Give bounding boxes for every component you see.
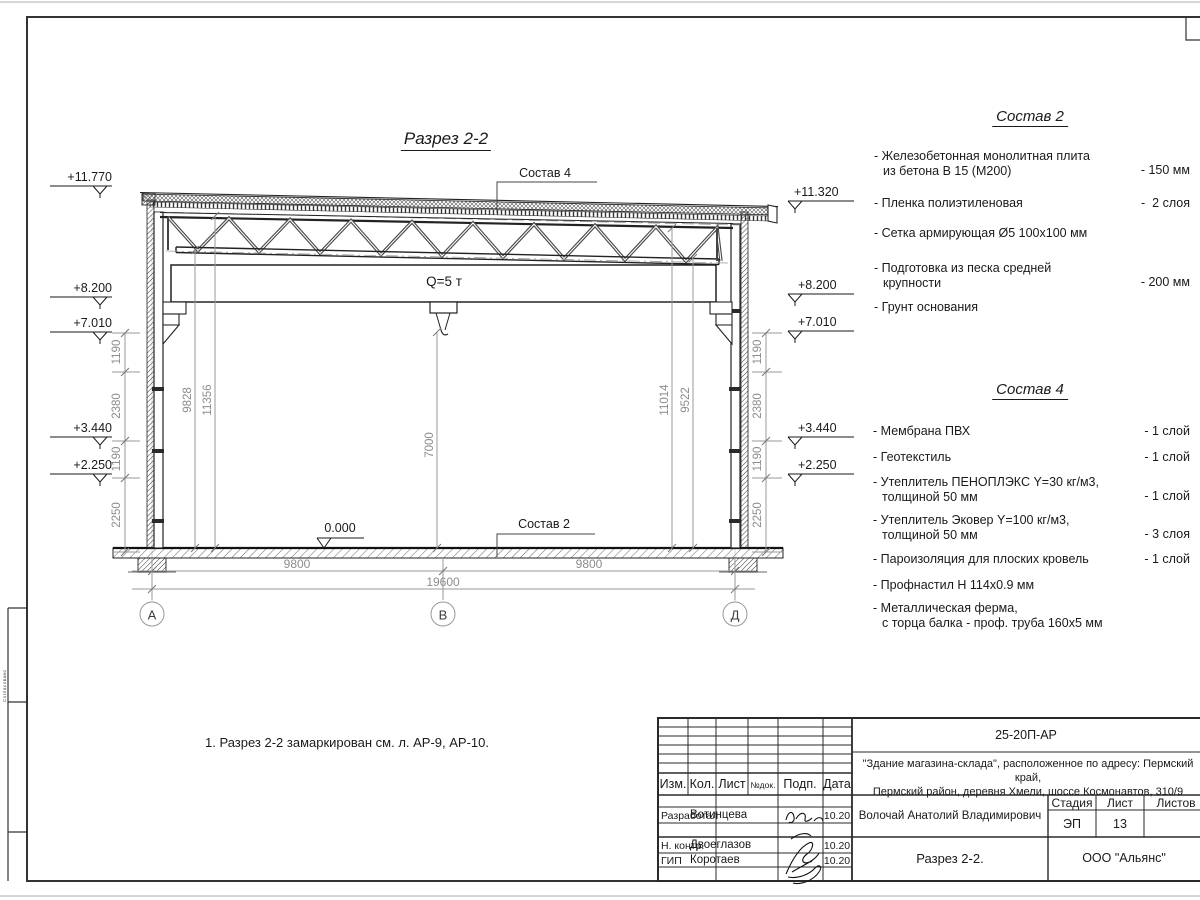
floor-slab (113, 548, 783, 572)
dim-9828: 9828 (182, 387, 194, 413)
comp4-item-4: - Пароизоляция для плоских кровель (873, 552, 1089, 567)
dim-right-1190a: 1190 (752, 340, 764, 365)
sheet-frame (8, 17, 1200, 881)
comp4-value-1: - 1 слой (1092, 450, 1190, 464)
titleblock-date-0: 10.20 (824, 810, 850, 822)
titleblock-sheet-label: Лист (1107, 796, 1133, 810)
level-left-2: +7.010 (50, 316, 112, 330)
dim-9522: 9522 (680, 387, 692, 413)
level-left-0: +11.770 (50, 170, 112, 184)
comp4-item-3: - Утеплитель Эковер Y=100 кг/м3, толщино… (873, 513, 1069, 542)
titleblock-col-kol: Кол. (690, 777, 715, 791)
titleblock-date-2: 10.20 (824, 855, 850, 867)
axis-d: Д (731, 608, 740, 623)
comp2-item-2: - Сетка армирующая Ø5 100х100 мм (874, 226, 1087, 241)
comp4-item-6: - Металлическая ферма, с торца балка - п… (873, 601, 1103, 630)
margin-stamp-text: Согласовано (2, 669, 7, 702)
comp2-item-1: - Пленка полиэтиленовая (874, 196, 1023, 211)
comp2-item-0: - Железобетонная монолитная плита из бет… (874, 149, 1090, 178)
titleblock-drawing-name: Разрез 2-2. (916, 851, 983, 866)
drawing-sheet: Разрез 2-2 Состав 4 Состав 2 Q=5 т 0.000… (0, 0, 1200, 900)
titleblock-sheets-label: Листов (1157, 796, 1196, 810)
dim-left-2250: 2250 (111, 502, 123, 528)
titleblock-col-izm: Изм. (660, 777, 687, 791)
comp2-value-3: - 200 мм (1092, 275, 1190, 289)
dim-right-2380: 2380 (752, 393, 764, 419)
section-title: Разрез 2-2 (401, 129, 491, 151)
titleblock-chief: Волочай Анатолий Владимирович (859, 810, 1042, 822)
level-right-4: +2.250 (798, 458, 860, 472)
comp4-item-2: - Утеплитель ПЕНОПЛЭКС Y=30 кг/м3, толщи… (873, 475, 1099, 504)
titleblock-col-ndok: №док. (751, 780, 776, 790)
level-right-3: +3.440 (798, 421, 860, 435)
truss (160, 213, 733, 265)
dim-7000: 7000 (424, 432, 436, 458)
dim-9800-left: 9800 (284, 557, 311, 571)
comp4-value-3: - 3 слоя (1092, 527, 1190, 541)
comp2-value-1: - 2 слоя (1092, 196, 1190, 210)
titleblock-project: "Здание магазина-склада", расположенное … (856, 757, 1200, 799)
titleblock-col-list: Лист (718, 777, 745, 791)
titleblock-stage-value: ЭП (1063, 817, 1081, 831)
comp4-item-0: - Мембрана ПВХ (873, 424, 970, 439)
titleblock-role-2: ГИП (661, 855, 682, 867)
level-right-1: +8.200 (798, 278, 860, 292)
dim-9800-right: 9800 (576, 557, 603, 571)
titleblock-col-data: Дата (823, 777, 851, 791)
dim-11356: 11356 (202, 384, 214, 415)
zero-level-label: 0.000 (324, 521, 355, 535)
level-left-4: +2.250 (50, 458, 112, 472)
walls (142, 193, 748, 548)
comp4-item-1: - Геотекстиль (873, 450, 952, 465)
dim-right-2250: 2250 (752, 502, 764, 528)
titleblock-date-1: 10.20 (824, 840, 850, 852)
level-right-2: +7.010 (798, 315, 860, 329)
comp4-value-0: - 1 слой (1092, 424, 1190, 438)
comp2-item-4: - Грунт основания (874, 300, 978, 315)
comp2-title: Состав 2 (992, 108, 1068, 127)
axis-b: В (439, 608, 448, 623)
comp2-item-3: - Подготовка из песка средней крупности (874, 261, 1051, 290)
level-left-1: +8.200 (50, 281, 112, 295)
comp4-value-2: - 1 слой (1092, 489, 1190, 503)
titleblock-sheet-value: 13 (1113, 817, 1127, 831)
dim-right-1190b: 1190 (752, 447, 764, 472)
dim-left-1190b: 1190 (111, 447, 123, 472)
comp2-leader-label: Состав 2 (518, 517, 570, 531)
dim-19600: 19600 (426, 575, 459, 589)
axis-a: А (148, 608, 157, 623)
titleblock-col-podp: Подп. (783, 777, 816, 791)
roof (140, 193, 778, 226)
titleblock-stage-label: Стадия (1052, 796, 1093, 810)
comp4-leader-label: Состав 4 (519, 166, 571, 180)
level-left-3: +3.440 (50, 421, 112, 435)
level-right-0: +11.320 (794, 185, 856, 199)
dim-11014: 11014 (659, 384, 671, 415)
titleblock-doc-number: 25-20П-АР (995, 728, 1057, 742)
titleblock-name-0: Вотинцева (690, 809, 747, 821)
drawing-note: 1. Разрез 2-2 замаркирован см. л. АР-9, … (205, 735, 489, 750)
comp4-value-4: - 1 слой (1092, 552, 1190, 566)
comp4-title: Состав 4 (992, 381, 1068, 400)
dim-left-2380: 2380 (111, 393, 123, 419)
titleblock-company: ООО "Альянс" (1082, 851, 1166, 865)
comp2-value-0: - 150 мм (1092, 163, 1190, 177)
crane-capacity-label: Q=5 т (426, 274, 462, 289)
titleblock-name-1: Двоеглазов (690, 839, 751, 851)
comp4-item-5: - Профнастил Н 114х0.9 мм (873, 578, 1034, 593)
dim-left-1190a: 1190 (111, 340, 123, 365)
titleblock-name-2: Коротаев (690, 854, 740, 866)
